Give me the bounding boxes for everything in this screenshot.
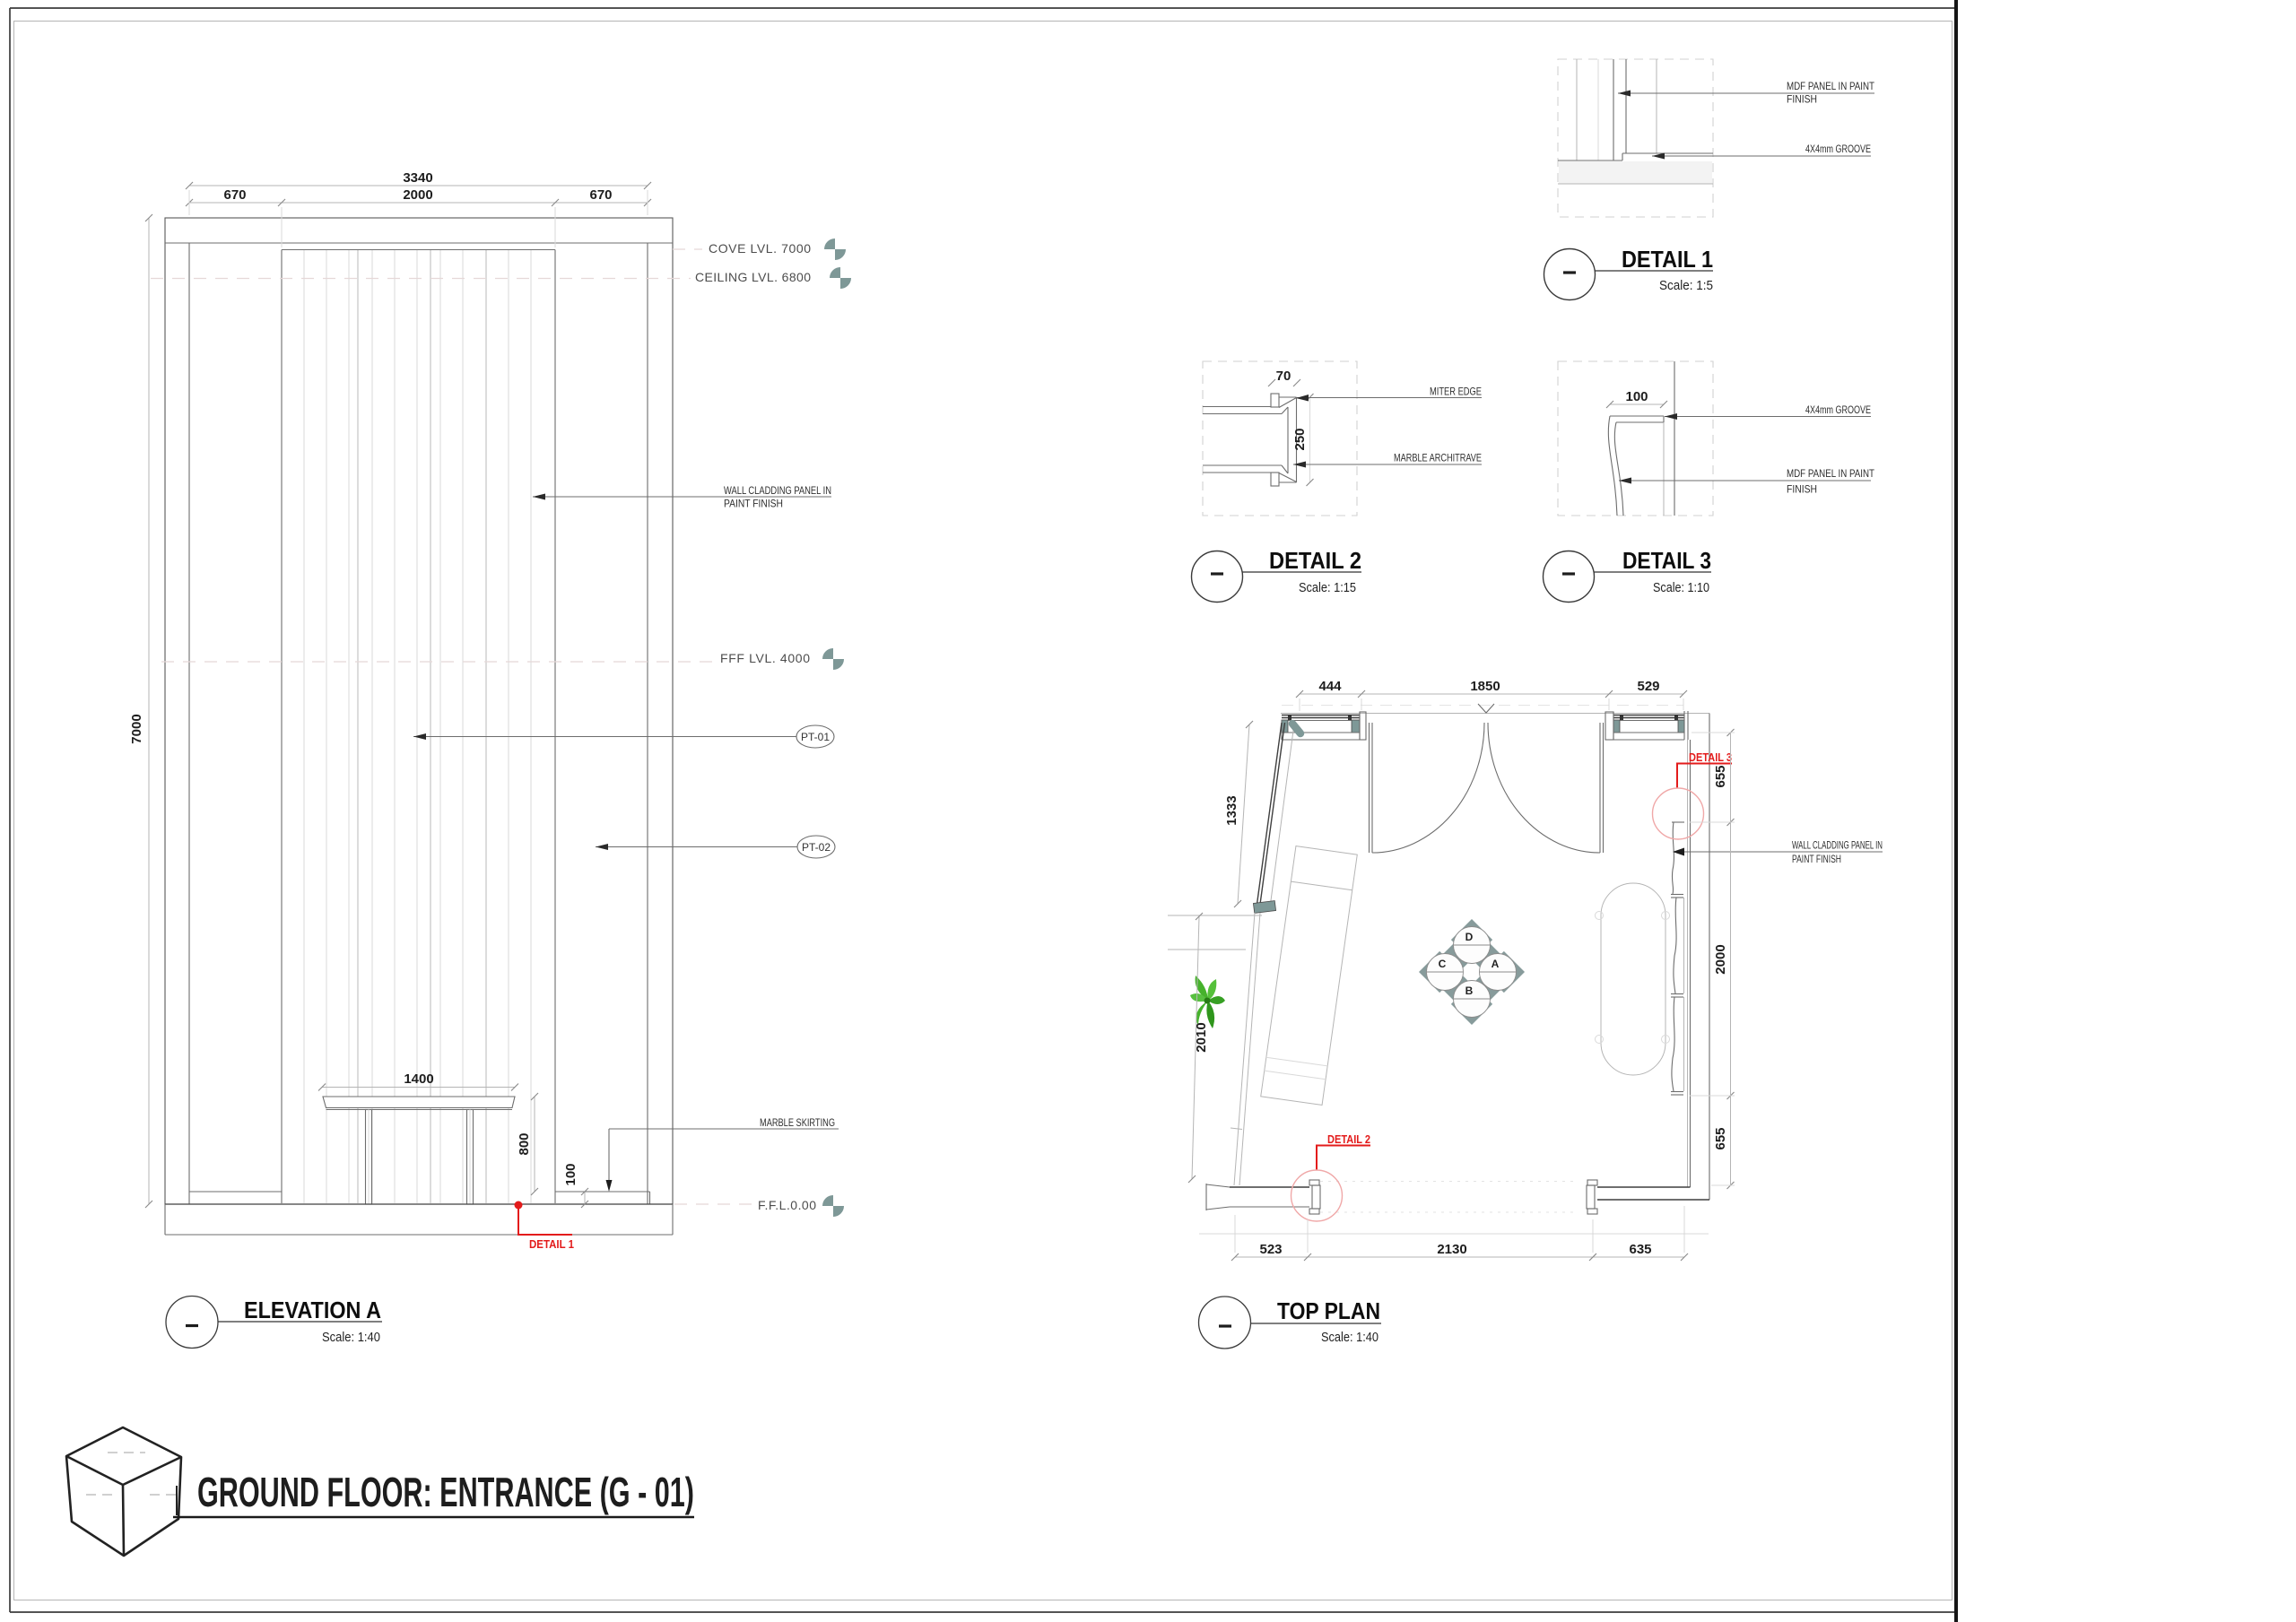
svg-text:4X4mm GROOVE: 4X4mm GROOVE — [1805, 143, 1871, 155]
svg-text:DETAIL 2: DETAIL 2 — [1327, 1132, 1370, 1146]
svg-text:MARBLE ARCHITRAVE: MARBLE ARCHITRAVE — [1394, 452, 1482, 464]
svg-text:PT-02: PT-02 — [802, 841, 831, 854]
svg-text:DETAIL 3: DETAIL 3 — [1622, 547, 1711, 574]
svg-text:250: 250 — [1292, 428, 1308, 450]
svg-text:Scale: 1:15: Scale: 1:15 — [1299, 581, 1356, 595]
svg-text:2000: 2000 — [1713, 944, 1728, 974]
svg-text:1850: 1850 — [1470, 679, 1500, 694]
svg-text:635: 635 — [1629, 1242, 1651, 1257]
svg-text:C: C — [1439, 958, 1447, 970]
svg-text:MITER EDGE: MITER EDGE — [1430, 386, 1482, 398]
svg-text:PAINT FINISH: PAINT FINISH — [724, 498, 783, 510]
svg-text:670: 670 — [223, 187, 246, 203]
svg-text:MDF PANEL IN PAINT: MDF PANEL IN PAINT — [1787, 467, 1875, 480]
svg-text:WALL CLADDING PANEL IN: WALL CLADDING PANEL IN — [724, 484, 831, 497]
svg-text:70: 70 — [1276, 369, 1291, 384]
svg-text:100: 100 — [1625, 389, 1648, 404]
svg-text:ELEVATION A: ELEVATION A — [244, 1297, 381, 1323]
svg-text:523: 523 — [1259, 1242, 1282, 1257]
svg-text:TOP PLAN: TOP PLAN — [1277, 1297, 1380, 1324]
svg-text:670: 670 — [589, 187, 612, 203]
svg-text:2130: 2130 — [1437, 1242, 1466, 1257]
svg-text:Scale: 1:40: Scale: 1:40 — [322, 1331, 380, 1345]
svg-text:Scale: 1:5: Scale: 1:5 — [1659, 279, 1713, 293]
svg-text:A: A — [1492, 958, 1500, 970]
svg-text:PAINT FINISH: PAINT FINISH — [1792, 853, 1841, 865]
svg-text:2000: 2000 — [403, 187, 432, 203]
svg-text:529: 529 — [1637, 679, 1659, 694]
svg-text:WALL CLADDING PANEL IN: WALL CLADDING PANEL IN — [1792, 839, 1883, 852]
svg-text:Scale: 1:10: Scale: 1:10 — [1653, 581, 1709, 595]
svg-text:1400: 1400 — [404, 1071, 433, 1087]
svg-text:100: 100 — [563, 1163, 578, 1185]
svg-text:3340: 3340 — [403, 170, 432, 186]
svg-text:655: 655 — [1713, 1127, 1728, 1149]
svg-text:COVE LVL. 7000: COVE LVL. 7000 — [709, 241, 811, 256]
svg-text:DETAIL 1: DETAIL 1 — [1622, 246, 1713, 273]
svg-text:4X4mm GROOVE: 4X4mm GROOVE — [1805, 403, 1871, 416]
svg-text:FFF LVL. 4000: FFF LVL. 4000 — [720, 651, 810, 665]
svg-text:444: 444 — [1318, 679, 1342, 694]
svg-text:Scale: 1:40: Scale: 1:40 — [1321, 1331, 1378, 1345]
svg-text:1333: 1333 — [1224, 795, 1239, 825]
svg-text:FINISH: FINISH — [1787, 93, 1817, 106]
svg-text:GROUND FLOOR: ENTRANCE (G - 01: GROUND FLOOR: ENTRANCE (G - 01) — [197, 1469, 694, 1515]
svg-text:FINISH: FINISH — [1787, 483, 1817, 496]
svg-text:DETAIL 1: DETAIL 1 — [529, 1237, 574, 1251]
svg-text:MARBLE SKIRTING: MARBLE SKIRTING — [760, 1116, 835, 1129]
svg-text:DETAIL 3: DETAIL 3 — [1689, 750, 1732, 764]
svg-text:MDF PANEL IN PAINT: MDF PANEL IN PAINT — [1787, 80, 1875, 92]
svg-text:D: D — [1465, 931, 1474, 943]
svg-text:F.F.L.0.00: F.F.L.0.00 — [758, 1198, 816, 1212]
svg-text:655: 655 — [1713, 765, 1728, 787]
svg-text:7000: 7000 — [129, 714, 144, 743]
svg-text:CEILING LVL. 6800: CEILING LVL. 6800 — [695, 270, 811, 284]
svg-text:800: 800 — [517, 1132, 532, 1155]
svg-text:B: B — [1465, 984, 1474, 997]
svg-text:2010: 2010 — [1194, 1022, 1209, 1052]
svg-text:DETAIL 2: DETAIL 2 — [1269, 547, 1361, 574]
svg-text:PT-01: PT-01 — [801, 731, 830, 743]
